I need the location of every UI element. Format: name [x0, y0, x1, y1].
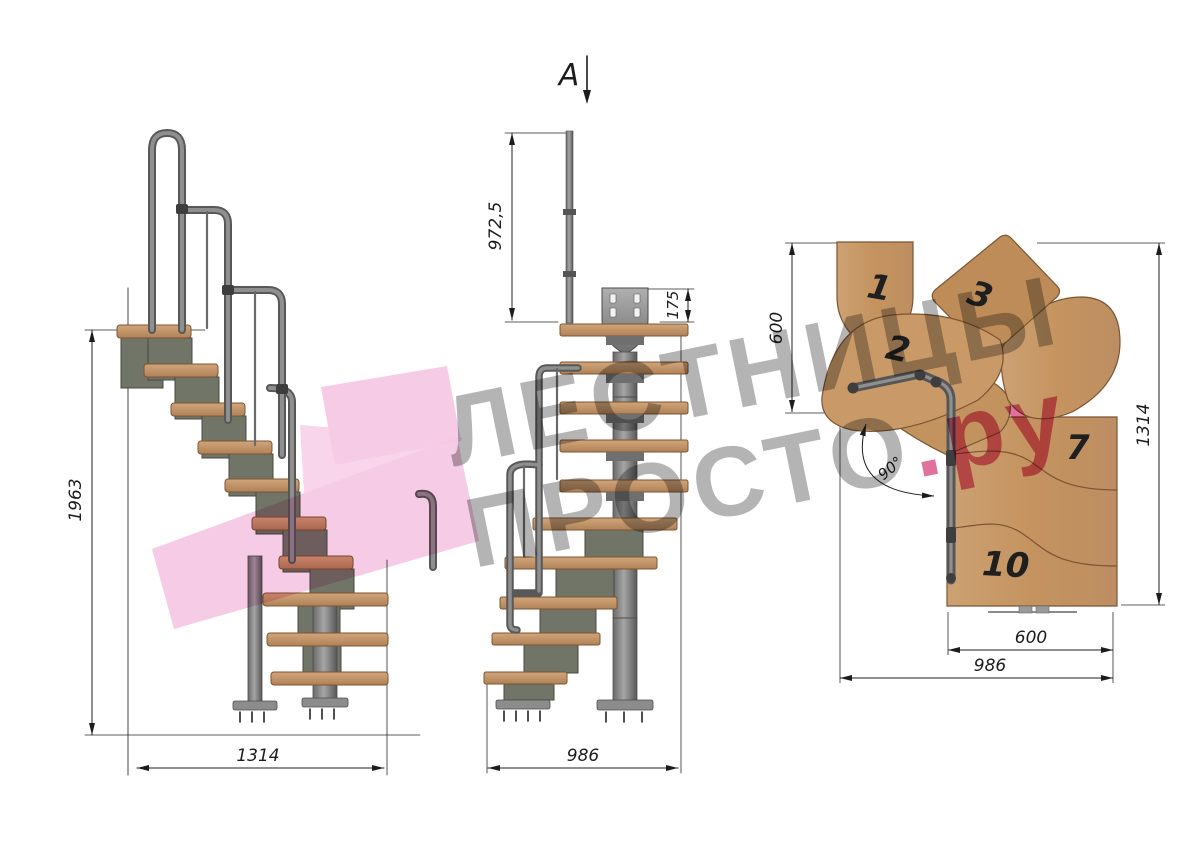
dim-label-972-5: 972,5	[486, 202, 506, 251]
dim-plan-total-width: 986	[840, 656, 1113, 678]
tread	[560, 324, 688, 336]
tread	[484, 672, 567, 684]
section-letter: A	[557, 58, 580, 93]
tread	[505, 557, 657, 569]
tread	[560, 440, 688, 452]
dim-label-986: 986	[567, 746, 600, 766]
dim-label-175: 175	[664, 291, 682, 320]
dim-label-600-top: 600	[767, 312, 787, 344]
dim-label-986-plan: 986	[974, 656, 1007, 676]
tread	[271, 672, 388, 685]
bracket-base-flange	[496, 700, 550, 709]
dim-front-rail-height: 972,5	[486, 133, 512, 320]
section-arrow-head	[583, 90, 591, 104]
wall-bracket	[988, 606, 1077, 613]
tread	[198, 441, 272, 454]
dim-label-1963: 1963	[66, 478, 86, 521]
dim-label-1314-right: 1314	[1134, 403, 1154, 446]
dim-side-height: 1963	[66, 330, 92, 735]
dim-plan-tread-width: 600	[948, 628, 1113, 650]
column-base-flange	[597, 700, 653, 710]
tread	[267, 633, 388, 646]
tread	[500, 597, 617, 609]
staircase-drawing: 1963 1314 A	[0, 0, 1200, 849]
drawing-canvas: 1963 1314 A	[0, 0, 1200, 849]
tread	[492, 633, 600, 645]
dim-front-plate: 175	[664, 289, 688, 322]
plan-tread-column	[947, 417, 1117, 606]
tread-number-7: 7	[1066, 428, 1090, 468]
anchor-bolts	[240, 709, 334, 722]
rail-post	[566, 131, 573, 323]
dim-label-1314: 1314	[236, 746, 279, 766]
tread	[144, 364, 218, 377]
tread	[560, 402, 688, 414]
tread-number-10: 10	[981, 544, 1030, 586]
post-sleeve	[563, 209, 576, 215]
dim-side-length: 1314	[137, 746, 384, 768]
base-flange	[302, 698, 348, 707]
dim-label-600-bottom: 600	[1015, 628, 1047, 648]
tread	[225, 479, 299, 492]
front-view: A	[484, 56, 694, 773]
tread	[171, 403, 245, 416]
dim-label-90deg: 90°	[874, 453, 906, 484]
anchor-bolts	[504, 711, 642, 722]
plan-view: 1 2 3 7 10 600 1314 600 986 90°	[767, 235, 1165, 683]
dim-plan-top: 600	[767, 243, 792, 412]
tread	[533, 518, 677, 530]
post-sleeve	[563, 271, 576, 277]
dim-plan-right: 1314	[1134, 243, 1159, 605]
tread	[560, 480, 688, 492]
base-flange	[233, 701, 277, 710]
support-column	[313, 604, 337, 700]
dim-front-width: 986	[488, 746, 678, 768]
